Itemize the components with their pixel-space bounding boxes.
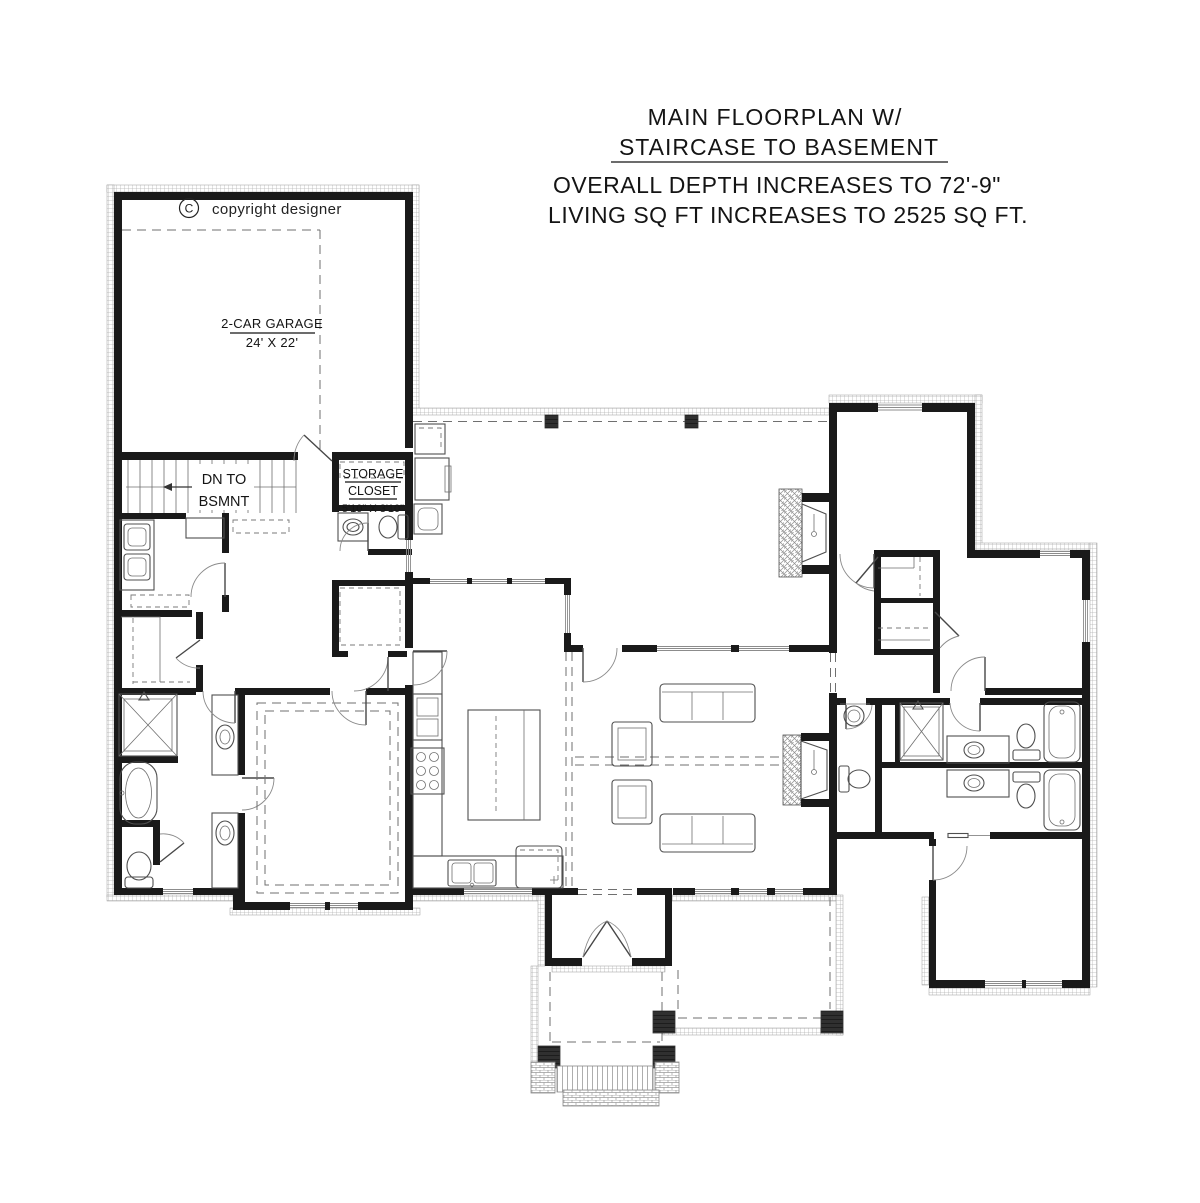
closet-door-leaf: [176, 640, 200, 658]
foyer: [578, 890, 637, 958]
storage-label-line2: CLOSET: [348, 484, 398, 498]
porch-post: [545, 415, 558, 428]
covered-porch: [678, 897, 843, 1033]
plan-title-line2: STAIRCASE TO BASEMENT: [619, 134, 939, 160]
bath2-door-swing: [950, 703, 980, 731]
armchair-top: [612, 722, 652, 766]
bath-3: [947, 770, 1080, 839]
bath-entry-swing: [203, 691, 235, 723]
walk-landing: [563, 1090, 659, 1106]
understair-shelf: [233, 520, 289, 533]
porch-column: [821, 1011, 843, 1033]
garage-dims: 24' X 22': [246, 335, 298, 350]
porch-column: [653, 1011, 675, 1033]
title-block: MAIN FLOORPLAN W/ STAIRCASE TO BASEMENT …: [548, 104, 1028, 228]
walls: [114, 192, 1090, 988]
range: [411, 748, 444, 794]
bath2-vanity: [947, 736, 1009, 763]
bedroom-4: [933, 846, 967, 880]
bath3-tub: [1044, 770, 1080, 830]
sofa-top: [660, 684, 755, 722]
kitchen-island: [468, 710, 540, 820]
bedroom3-door-swing: [951, 657, 985, 691]
closet2-door-swing: [940, 636, 959, 648]
windows: [163, 405, 1088, 986]
bath3-vanity: [947, 770, 1009, 797]
front-steps: [557, 1066, 653, 1092]
porch-post: [685, 415, 698, 428]
bath3-toilet: [1013, 772, 1040, 808]
master-vanity: [212, 695, 238, 888]
master-closet: [121, 617, 200, 684]
powder-door-swing: [340, 523, 368, 551]
floorplan-page: MAIN FLOORPLAN W/ STAIRCASE TO BASEMENT …: [0, 0, 1200, 1203]
floorplan-canvas: MAIN FLOORPLAN W/ STAIRCASE TO BASEMENT …: [0, 0, 1200, 1203]
plan-title-line1: MAIN FLOORPLAN W/: [648, 104, 903, 130]
master-bath: [119, 691, 274, 888]
refrigerator: [516, 846, 562, 888]
rear-porch: [413, 415, 829, 577]
hall-closet: [856, 557, 920, 596]
bath2-toilet: [1013, 724, 1040, 760]
garage-door-leaf: [304, 435, 332, 461]
powder-room-mud: [338, 513, 408, 551]
sofa-bottom: [660, 814, 755, 852]
bath-bedroom-swing: [242, 778, 274, 810]
laundry-room: [120, 520, 225, 607]
wc-door-swing: [160, 834, 184, 843]
plan-note-line2: LIVING SQ FT INCREASES TO 2525 SQ FT.: [548, 202, 1028, 228]
master-shower: [119, 692, 177, 756]
great-room: [566, 648, 836, 886]
stair-label-line2: BSMNT: [199, 494, 250, 510]
interior-fireplace: [783, 733, 829, 807]
copyright-text: copyright designer: [212, 201, 342, 218]
pantry: [340, 588, 400, 691]
storage-label-line1: STORAGE: [343, 467, 404, 481]
bedroom-door-swing: [332, 691, 366, 725]
bath-2: [900, 701, 1080, 763]
master-bedroom: [257, 691, 398, 893]
laundry-cabinet: [131, 595, 189, 607]
garage-label: 2-CAR GARAGE: [221, 316, 323, 331]
kitchen-sink: [448, 860, 496, 887]
bedroom3-closet: [878, 612, 959, 648]
master-tub: [120, 762, 157, 824]
pantry-door-swing: [354, 657, 388, 691]
powder-toilet: [379, 515, 408, 539]
step-pier-left: [531, 1062, 555, 1093]
bath2-tub: [1044, 702, 1080, 762]
powder-room-hall: [839, 704, 872, 792]
plan-note-line1: OVERALL DEPTH INCREASES TO 72'-9": [553, 172, 1001, 198]
bedroom4-door-swing: [933, 846, 967, 880]
rear-door-swing: [583, 648, 617, 682]
step-pier-right: [655, 1062, 679, 1093]
wc-door-leaf: [160, 843, 184, 862]
understair-nook: [186, 518, 224, 538]
front-porch: [531, 972, 679, 1106]
copyright-symbol: C: [185, 202, 194, 216]
storage-closet: STORAGE CLOSET 5'10" X 3'10": [340, 462, 404, 515]
front-double-door: [583, 921, 631, 957]
hall-toilet: [839, 766, 870, 792]
bath2-shower: [900, 701, 943, 760]
laundry-door-swing: [191, 563, 225, 597]
outdoor-fireplace: [779, 489, 829, 577]
hall-sink: [844, 706, 864, 726]
kitchen: [411, 651, 563, 888]
outdoor-kitchen: [414, 424, 451, 534]
stair-label-line1: DN TO: [202, 472, 247, 488]
bedroom-3: [951, 657, 985, 691]
copyright-note: C copyright designer: [180, 199, 342, 219]
pocket-door: [948, 832, 990, 839]
armchair-bottom: [612, 780, 652, 824]
garage-room: C copyright designer 2-CAR GARAGE 24' X …: [122, 199, 342, 453]
